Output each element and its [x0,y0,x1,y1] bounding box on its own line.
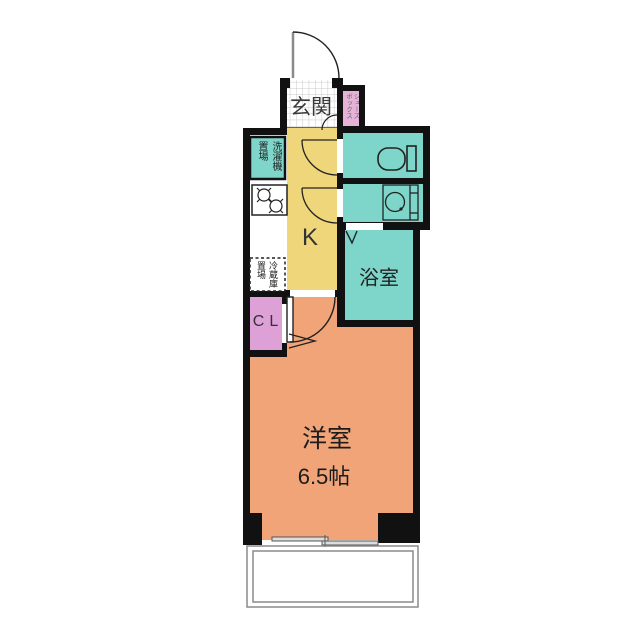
kitchen-label: K [302,224,318,252]
western-room-label: 洋室 [302,419,352,455]
kitchen-area [287,128,337,293]
entrance-label: 玄関 [290,91,332,121]
washer-space-label: 洗濯機置場 [254,141,282,175]
western-room-size: 6.5帖 [298,459,351,491]
closet-label: CL [253,313,283,331]
bathroom-label: 浴室 [359,262,399,291]
shoe-box-label: シューズボックス [343,93,359,121]
stove-burners-icon [252,185,287,215]
fridge-space-label: 冷蔵庫置場 [254,261,279,290]
floorplan: 玄関 シューズボックス 洗濯機置場 冷蔵庫置場 K 浴室 CL 洋室 6.5帖 [0,0,640,640]
